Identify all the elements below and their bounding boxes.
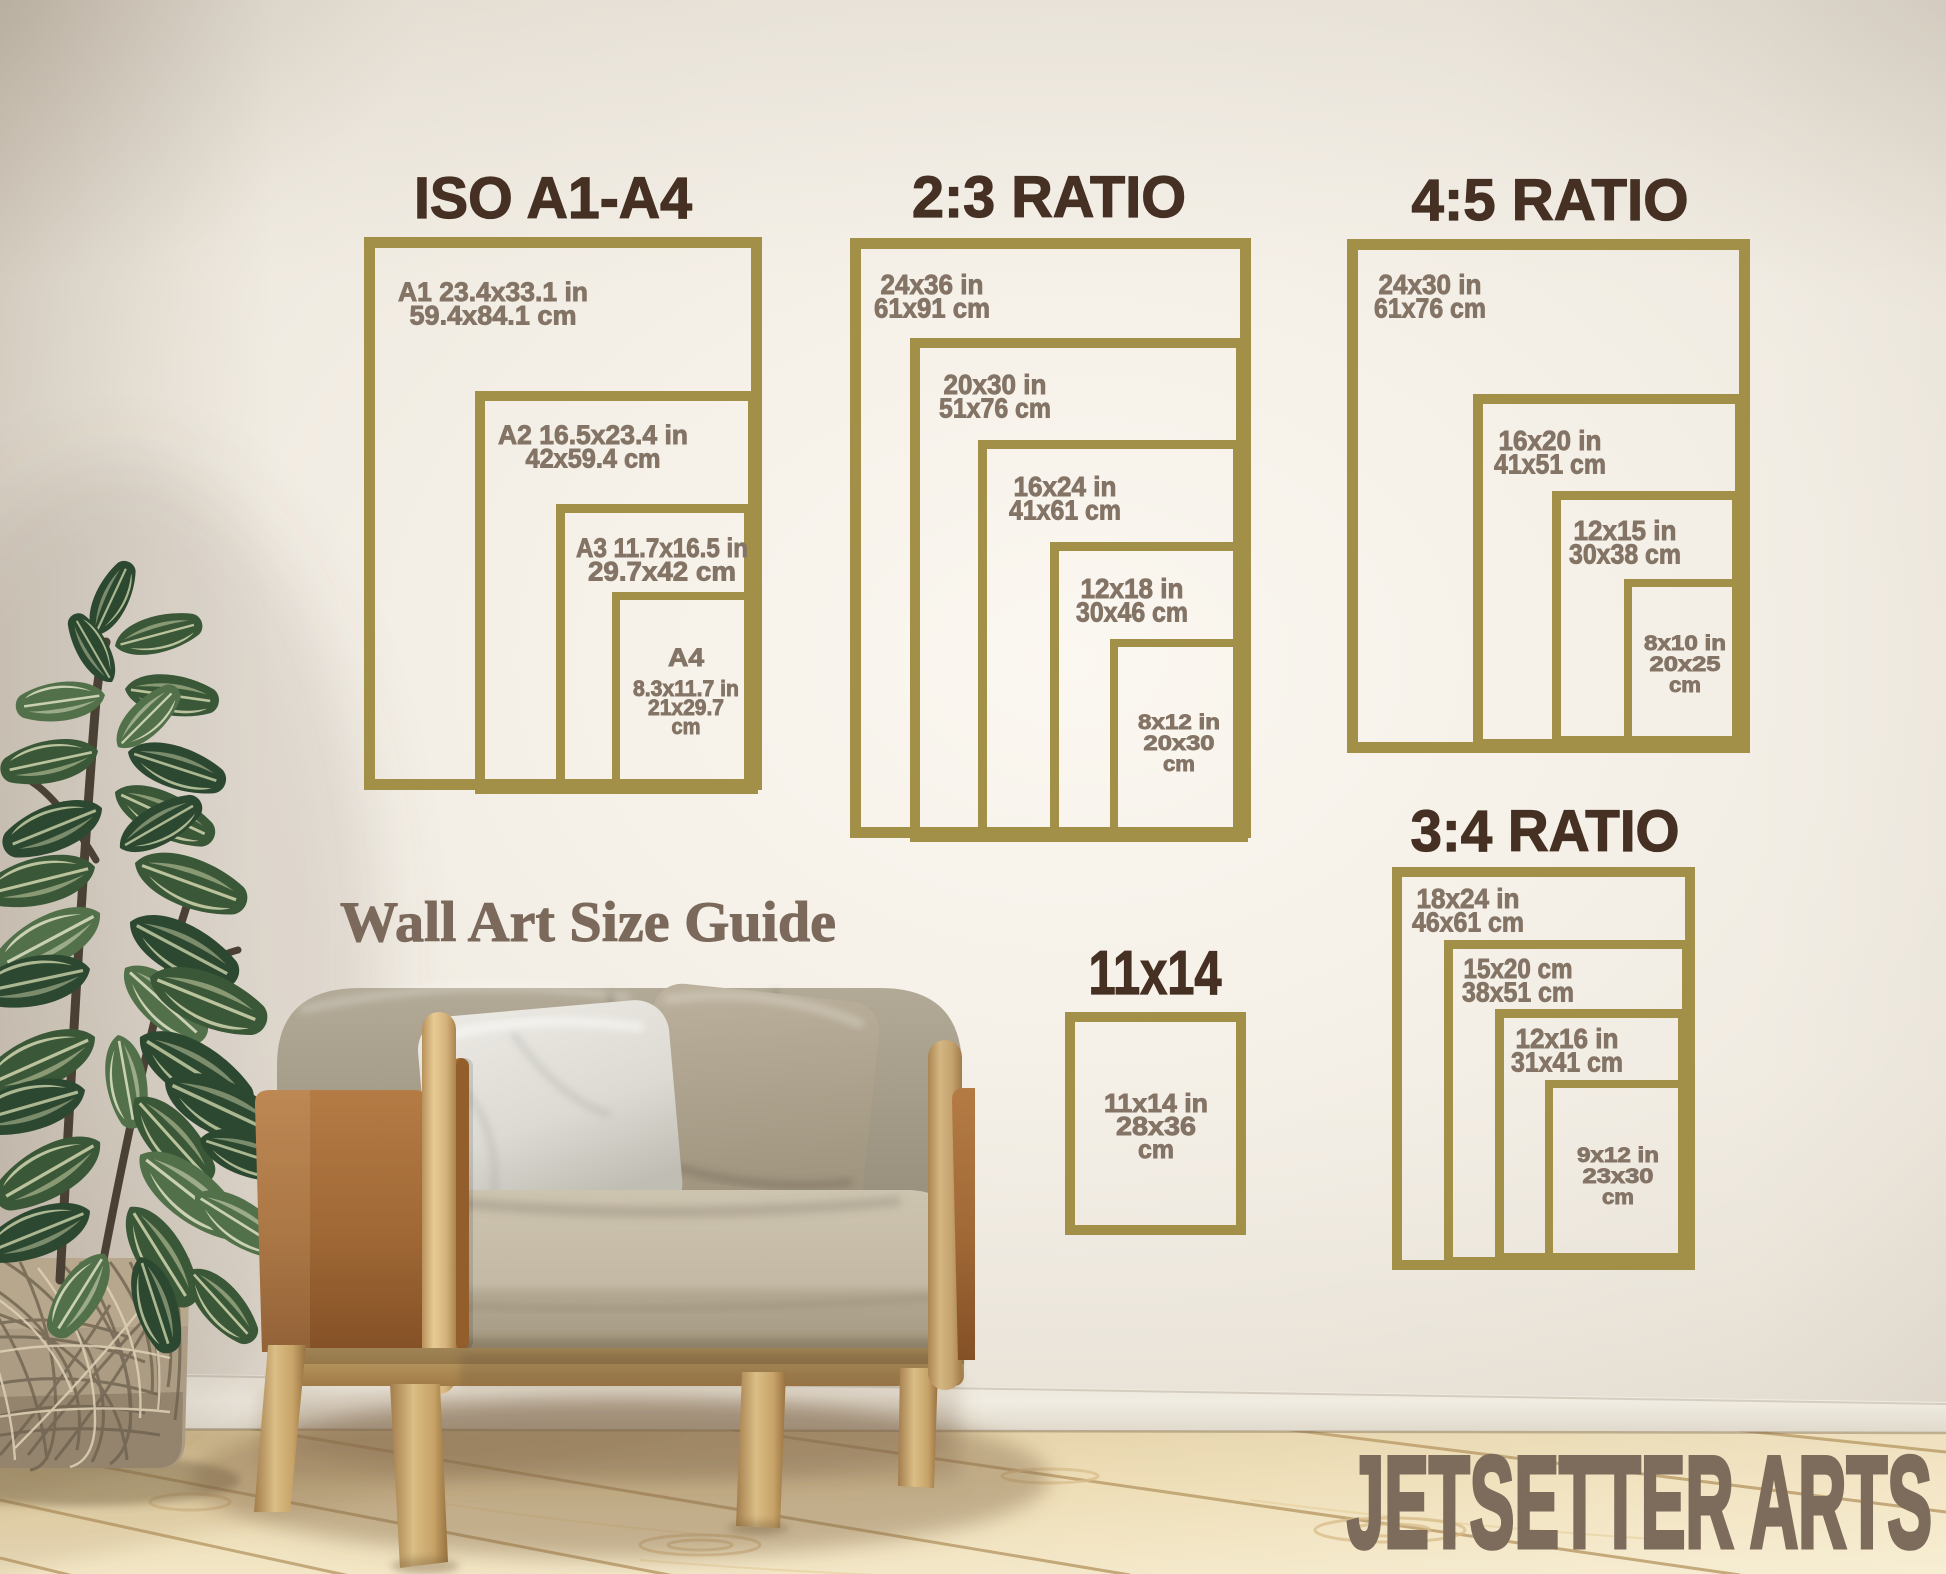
svg-text:41x61 cm: 41x61 cm: [1009, 495, 1121, 526]
svg-text:46x61 cm: 46x61 cm: [1412, 907, 1524, 938]
svg-text:A4: A4: [668, 644, 704, 672]
svg-text:Wall Art Size Guide: Wall Art Size Guide: [340, 891, 836, 954]
svg-text:11x14: 11x14: [1089, 939, 1222, 1008]
svg-text:61x91 cm: 61x91 cm: [874, 293, 990, 324]
svg-text:31x41 cm: 31x41 cm: [1511, 1047, 1623, 1078]
svg-text:JETSETTER ARTS: JETSETTER ARTS: [1347, 1429, 1932, 1574]
svg-text:cm: cm: [1163, 752, 1195, 776]
svg-text:2:3 RATIO: 2:3 RATIO: [912, 165, 1186, 230]
svg-text:3:4 RATIO: 3:4 RATIO: [1411, 799, 1680, 864]
svg-text:30x46 cm: 30x46 cm: [1076, 597, 1188, 628]
svg-text:cm: cm: [1669, 673, 1701, 697]
svg-text:41x51 cm: 41x51 cm: [1494, 449, 1606, 480]
svg-text:cm: cm: [672, 714, 701, 739]
svg-text:42x59.4 cm: 42x59.4 cm: [526, 444, 661, 474]
svg-text:59.4x84.1 cm: 59.4x84.1 cm: [410, 301, 577, 331]
svg-text:61x76 cm: 61x76 cm: [1374, 293, 1486, 324]
svg-text:29.7x42 cm: 29.7x42 cm: [588, 557, 736, 587]
svg-text:cm: cm: [1138, 1134, 1174, 1164]
svg-text:ISO A1-A4: ISO A1-A4: [414, 166, 692, 231]
svg-text:38x51 cm: 38x51 cm: [1462, 977, 1574, 1008]
svg-text:51x76 cm: 51x76 cm: [939, 393, 1051, 424]
svg-text:4:5 RATIO: 4:5 RATIO: [1412, 168, 1689, 233]
svg-text:cm: cm: [1602, 1185, 1634, 1209]
svg-text:30x38 cm: 30x38 cm: [1569, 539, 1681, 570]
